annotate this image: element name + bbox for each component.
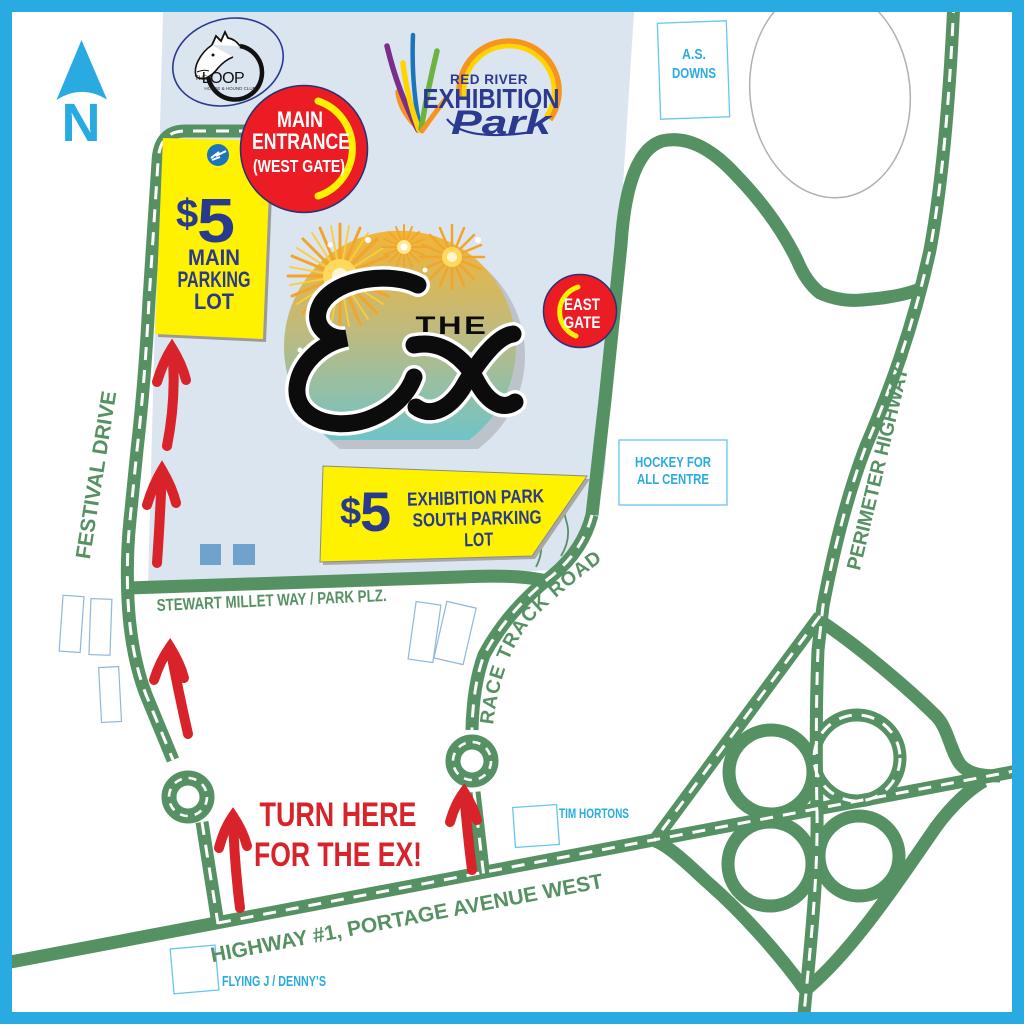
svg-text:LOOP: LOOP [202,70,244,87]
svg-text:$: $ [176,192,198,236]
svg-text:A.S.: A.S. [682,46,706,63]
svg-text:DOWNS: DOWNS [672,65,716,82]
svg-text:(WEST GATE): (WEST GATE) [253,156,345,176]
svg-text:GATE: GATE [564,314,601,332]
svg-text:N: N [62,93,101,153]
svg-text:EAST: EAST [564,296,600,314]
svg-text:ENTRANCE: ENTRANCE [252,129,350,154]
svg-text:FOR THE EX!: FOR THE EX! [254,836,422,874]
svg-text:HORSE & HOUND CLUB: HORSE & HOUND CLUB [204,86,255,91]
svg-text:5: 5 [360,480,391,543]
svg-text:HOCKEY FOR: HOCKEY FOR [635,455,711,471]
svg-text:ALL CENTRE: ALL CENTRE [637,472,709,488]
svg-text:TIM HORTONS: TIM HORTONS [559,805,629,821]
svg-text:$: $ [340,491,361,533]
svg-text:TURN HERE: TURN HERE [260,796,417,834]
svg-text:SOUTH PARKING: SOUTH PARKING [412,507,542,531]
svg-text:Park: Park [451,104,554,142]
svg-text:LOT: LOT [194,289,235,314]
svg-text:THE: THE [195,76,207,82]
svg-text:LOT: LOT [464,530,494,552]
svg-text:FLYING J / DENNY’S: FLYING J / DENNY’S [222,973,326,990]
